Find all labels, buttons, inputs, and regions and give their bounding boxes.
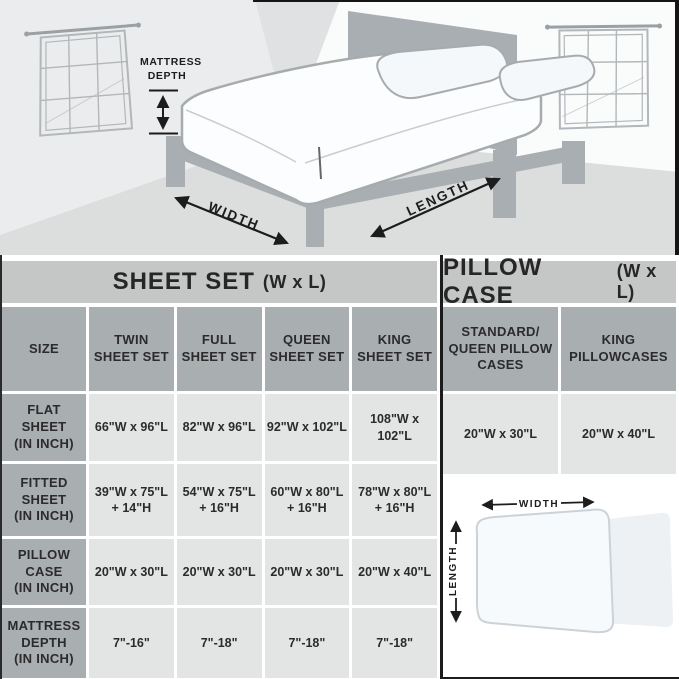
front-pillow bbox=[477, 509, 613, 632]
header-cell-full: FULL SHEET SET bbox=[177, 307, 262, 391]
value-depth-full: 7"-18" bbox=[177, 608, 262, 678]
bedroom-scene-svg bbox=[0, 0, 679, 255]
row-label-pillow-case: PILLOW CASE (IN INCH) bbox=[2, 539, 86, 605]
bed-leg-right bbox=[562, 141, 585, 184]
value-fitted-queen: 60"W x 80"L + 16"H bbox=[265, 464, 350, 536]
value-standard-queen-pillowcase: 20"W x 30"L bbox=[443, 394, 558, 474]
pillow-case-title-text: PILLOW CASE bbox=[443, 254, 609, 310]
pillow-case-title-suffix: (W x L) bbox=[617, 261, 676, 303]
header-cell-queen: QUEEN SHEET SET bbox=[265, 307, 350, 391]
pillow-case-section: PILLOW CASE (W x L) STANDARD/ QUEEN PILL… bbox=[440, 255, 679, 679]
scene-border-top bbox=[253, 0, 679, 2]
bedroom-illustration: MATTRESS DEPTH WIDTH LENGTH bbox=[0, 0, 679, 255]
sheet-set-title-text: SHEET SET bbox=[113, 268, 255, 296]
value-flat-king: 108"W x 102"L bbox=[352, 394, 437, 461]
value-flat-twin: 66"W x 96"L bbox=[89, 394, 174, 461]
header-cell-twin: TWIN SHEET SET bbox=[89, 307, 174, 391]
value-fitted-king: 78"W x 80"L + 16"H bbox=[352, 464, 437, 536]
value-pillowcase-queen: 20"W x 30"L bbox=[265, 539, 350, 605]
sheet-set-grid: SIZE TWIN SHEET SET FULL SHEET SET QUEEN… bbox=[2, 307, 437, 678]
value-pillowcase-twin: 20"W x 30"L bbox=[89, 539, 174, 605]
value-king-pillowcase: 20"W x 40"L bbox=[561, 394, 676, 474]
header-cell-size: SIZE bbox=[2, 307, 86, 391]
row-label-mattress-depth: MATTRESS DEPTH (IN INCH) bbox=[2, 608, 86, 678]
mattress-depth-label: MATTRESS DEPTH bbox=[140, 56, 194, 83]
pillow-diagram: WIDTH LENGTH bbox=[443, 474, 676, 677]
scene-border-right bbox=[675, 0, 679, 255]
pillow-case-grid: STANDARD/ QUEEN PILLOW CASES KING PILLOW… bbox=[443, 307, 676, 474]
value-depth-queen: 7"-18" bbox=[265, 608, 350, 678]
value-pillowcase-full: 20"W x 30"L bbox=[177, 539, 262, 605]
size-tables: SHEET SET (W x L) SIZE TWIN SHEET SET FU… bbox=[0, 255, 679, 679]
value-depth-twin: 7"-16" bbox=[89, 608, 174, 678]
pillow-length-label: LENGTH bbox=[448, 546, 459, 596]
pillow-case-title: PILLOW CASE (W x L) bbox=[443, 261, 676, 303]
header-cell-king: KING SHEET SET bbox=[352, 307, 437, 391]
header-cell-king-pillowcase: KING PILLOWCASES bbox=[561, 307, 676, 391]
value-fitted-twin: 39"W x 75"L + 14"H bbox=[89, 464, 174, 536]
value-fitted-full: 54"W x 75"L + 16"H bbox=[177, 464, 262, 536]
pillow-width-label: WIDTH bbox=[519, 499, 559, 510]
sheet-set-section: SHEET SET (W x L) SIZE TWIN SHEET SET FU… bbox=[0, 255, 440, 679]
row-label-flat-sheet: FLAT SHEET (IN INCH) bbox=[2, 394, 86, 461]
value-flat-full: 82"W x 96"L bbox=[177, 394, 262, 461]
header-cell-standard-queen: STANDARD/ QUEEN PILLOW CASES bbox=[443, 307, 558, 391]
value-pillowcase-king: 20"W x 40"L bbox=[352, 539, 437, 605]
value-flat-queen: 92"W x 102"L bbox=[265, 394, 350, 461]
row-label-fitted-sheet: FITTED SHEET (IN INCH) bbox=[2, 464, 86, 536]
sheet-set-title: SHEET SET (W x L) bbox=[2, 261, 437, 303]
pillow-diagram-svg: WIDTH LENGTH bbox=[443, 474, 676, 677]
value-depth-king: 7"-18" bbox=[352, 608, 437, 678]
sheet-set-title-suffix: (W x L) bbox=[263, 272, 327, 293]
